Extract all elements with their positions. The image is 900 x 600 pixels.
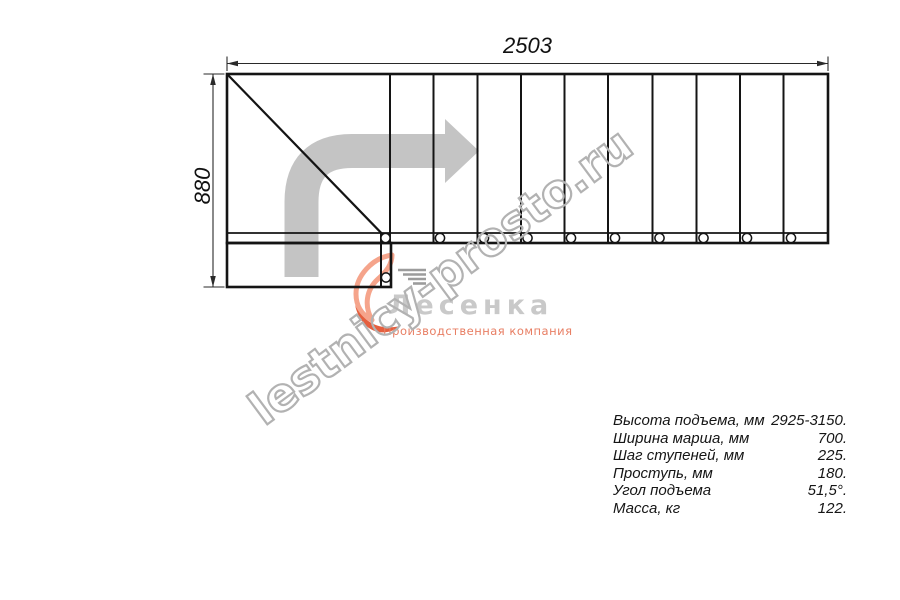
dimension-arrowhead — [210, 276, 216, 287]
baluster-circle — [566, 233, 575, 242]
spec-label: Высота подъема, мм — [613, 412, 765, 430]
specs-table: Высота подъема, мм2925-3150.Ширина марша… — [613, 412, 847, 518]
spec-row: Шаг ступеней, мм225. — [613, 447, 847, 465]
baluster-circle — [381, 273, 390, 282]
dimension-arrowhead — [817, 61, 828, 67]
spec-row: Проступь, мм180. — [613, 465, 847, 483]
baluster-circle — [655, 233, 664, 242]
spec-row: Ширина марша, мм700. — [613, 430, 847, 448]
spec-row: Масса, кг122. — [613, 500, 847, 518]
dimension-arrowhead — [210, 74, 216, 85]
baluster-circle — [742, 233, 751, 242]
spec-label: Шаг ступеней, мм — [613, 447, 744, 465]
baluster-circle — [523, 233, 532, 242]
direction-arrow-head-icon — [445, 119, 479, 183]
baluster-circle — [786, 233, 795, 242]
spec-value: 51,5°. — [808, 482, 847, 500]
spec-value: 225. — [818, 447, 847, 465]
spec-label: Ширина марша, мм — [613, 430, 749, 448]
spec-value: 180. — [818, 465, 847, 483]
spec-label: Проступь, мм — [613, 465, 713, 483]
baluster-circle — [435, 233, 444, 242]
spec-value: 700. — [818, 430, 847, 448]
spec-label: Масса, кг — [613, 500, 680, 518]
spec-value: 122. — [818, 500, 847, 518]
spec-row: Высота подъема, мм2925-3150. — [613, 412, 847, 430]
baluster-circle — [610, 233, 619, 242]
direction-arrow-icon — [302, 151, 446, 277]
stair-plan-page: Лесенка Производственная компания 2503 8… — [0, 0, 900, 600]
spec-value: 2925-3150. — [771, 412, 847, 430]
spec-label: Угол подъема — [613, 482, 711, 500]
baluster-circle — [381, 233, 390, 242]
baluster-circle — [699, 233, 708, 242]
dimension-arrowhead — [227, 61, 238, 67]
baluster-circle — [479, 233, 488, 242]
spec-row: Угол подъема51,5°. — [613, 482, 847, 500]
